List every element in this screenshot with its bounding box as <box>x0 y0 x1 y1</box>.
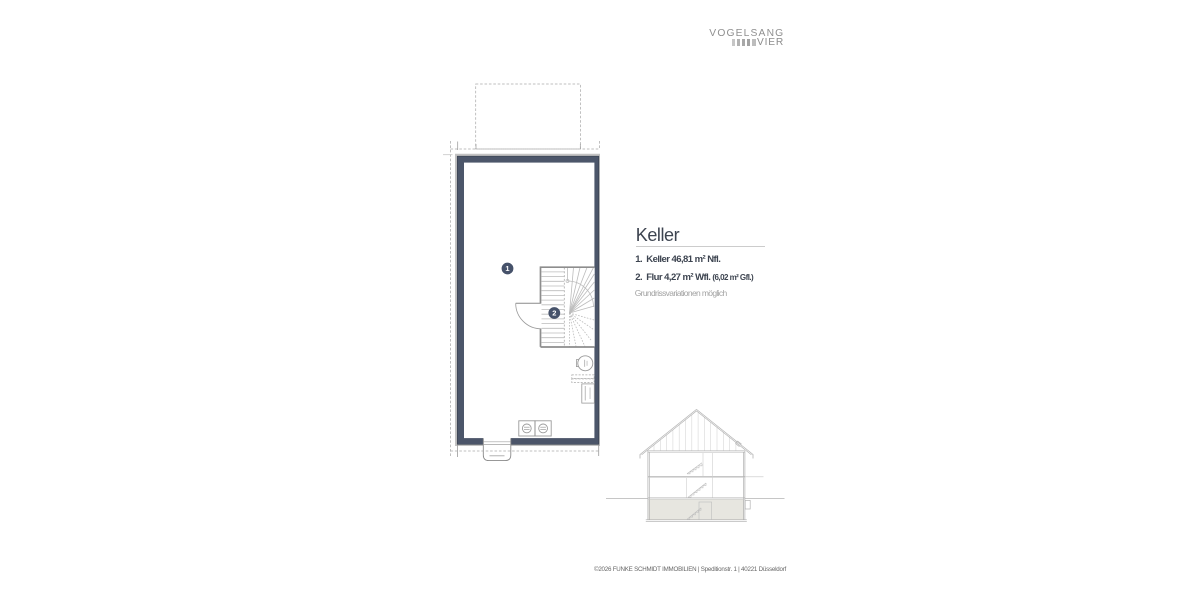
svg-text:1: 1 <box>505 264 509 273</box>
svg-text:2: 2 <box>552 309 556 318</box>
